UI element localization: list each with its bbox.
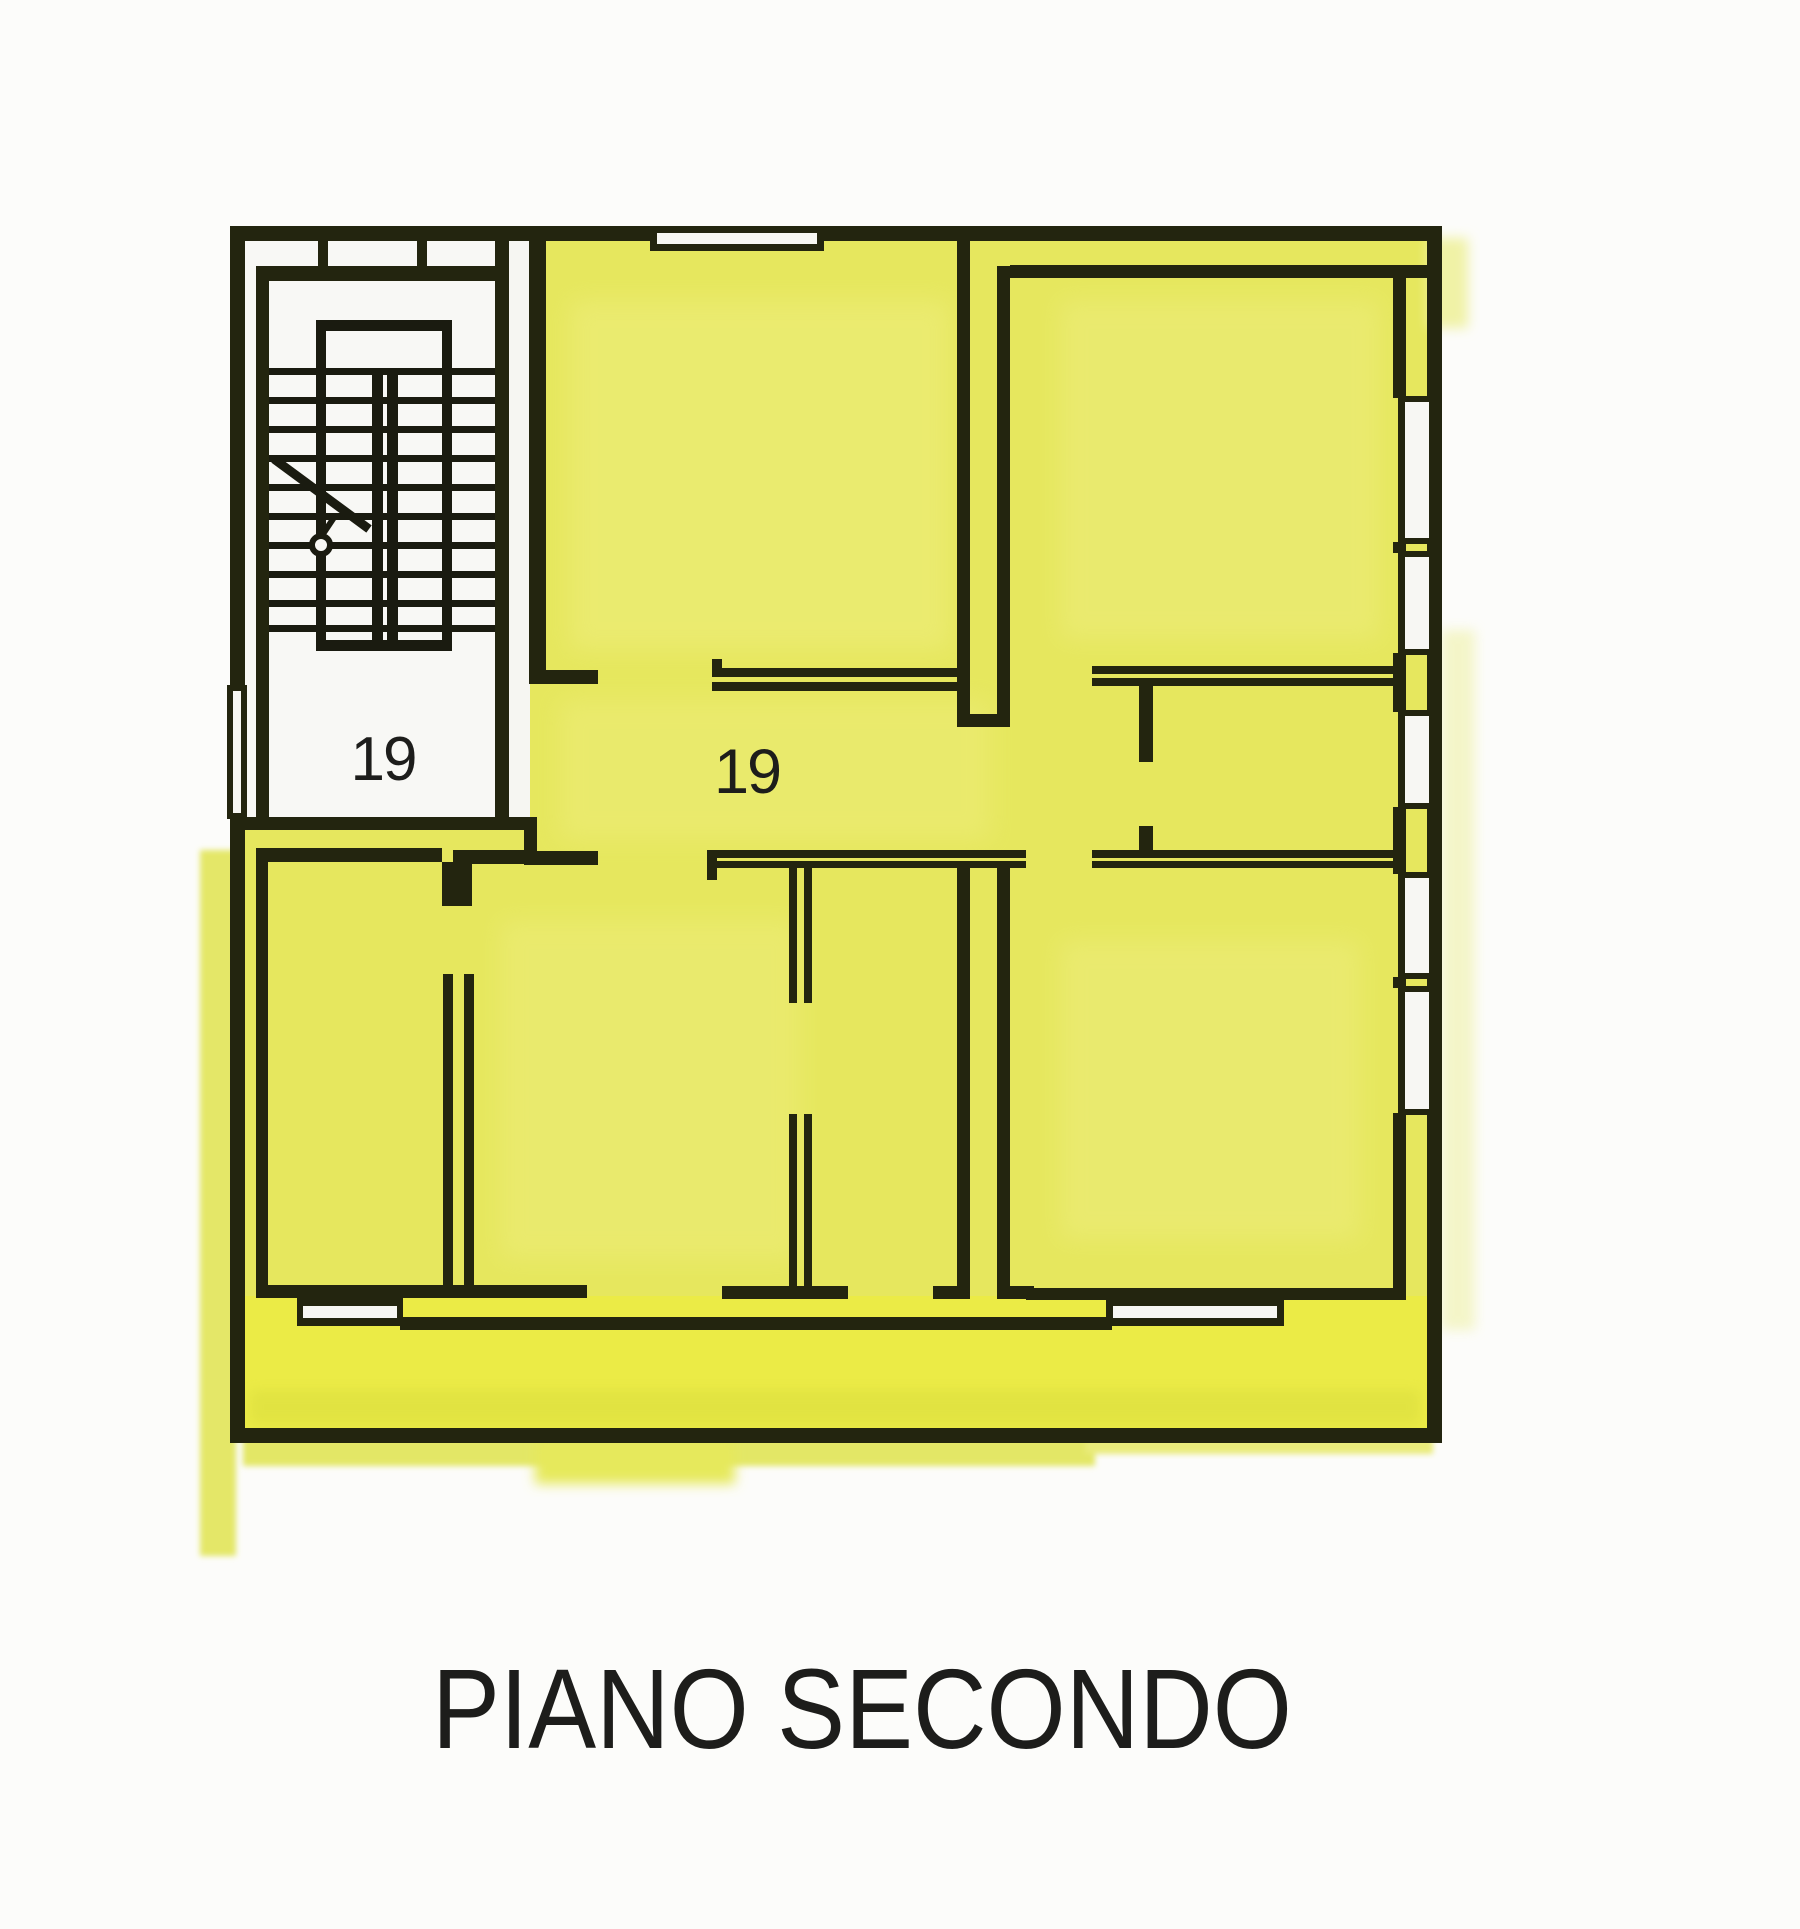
svg-text:19: 19	[714, 737, 780, 807]
svg-text:PIANO SECONDO: PIANO SECONDO	[432, 1646, 1292, 1772]
svg-text:19: 19	[351, 725, 416, 794]
